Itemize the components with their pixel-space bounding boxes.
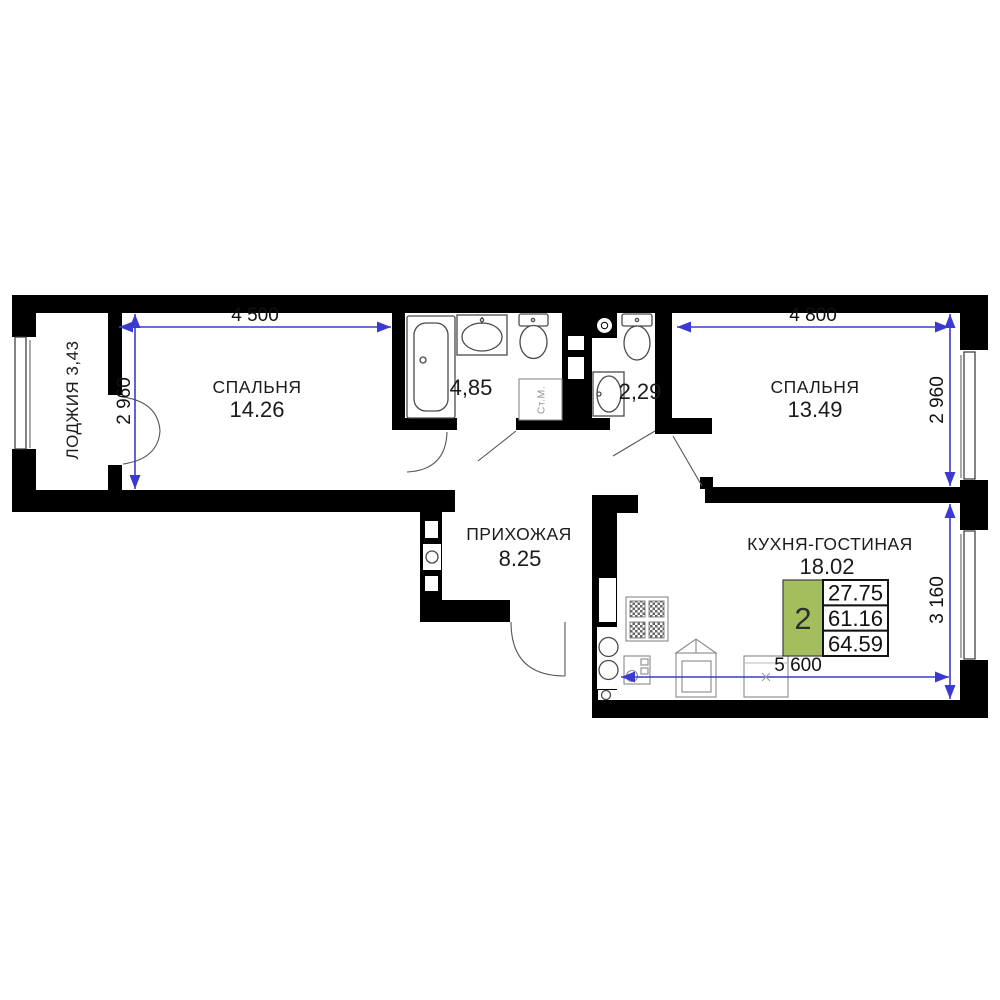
- label-kitchen: КУХНЯ-ГОСТИНАЯ: [747, 534, 913, 554]
- room-hallway: ПРИХОЖАЯ 8.25: [466, 524, 572, 571]
- label-bedroom2: СПАЛЬНЯ: [770, 377, 859, 397]
- bathroom-sink-icon: [457, 315, 507, 355]
- dim-kitchen-width: 5 600: [774, 655, 822, 676]
- badge-room-count: 2: [794, 601, 811, 636]
- area-bedroom1: 14.26: [229, 397, 284, 422]
- dim-bedroom1-depth: 2 960: [114, 377, 135, 425]
- bathroom-toilet-icon: [519, 314, 548, 359]
- label-hallway: ПРИХОЖАЯ: [466, 524, 572, 544]
- floor-plan: Ст.М.: [0, 0, 1000, 1000]
- room-kitchen: КУХНЯ-ГОСТИНАЯ 18.02: [747, 534, 913, 579]
- vent-icon: [592, 313, 617, 338]
- room-labels: ЛОДЖИЯ 3,43 СПАЛЬНЯ 14.26 4,85 2,29 СПАЛ…: [63, 340, 913, 579]
- washing-machine-label: Ст.М.: [536, 386, 548, 414]
- label-bedroom1: СПАЛЬНЯ: [212, 377, 301, 397]
- stove-icon: [626, 597, 668, 641]
- dim-kitchen-depth: 3 160: [927, 576, 948, 624]
- toilet-door-leaf: [613, 431, 655, 456]
- bathtub-icon: [407, 316, 455, 418]
- area-kitchen: 18.02: [799, 554, 854, 579]
- washing-machine: Ст.М.: [519, 379, 562, 420]
- dim-bedroom1-width: 4 500: [231, 305, 279, 326]
- area-hallway: 8.25: [499, 546, 542, 571]
- room-bedroom-2: СПАЛЬНЯ 13.49: [770, 377, 859, 422]
- area-bedroom2: 13.49: [787, 397, 842, 422]
- floor-plan-page: Ст.М.: [0, 0, 1000, 1000]
- label-loggia: ЛОДЖИЯ 3,43: [63, 340, 82, 459]
- loggia-door-leaf-bottom: [123, 431, 160, 464]
- area-bathroom: 4,85: [450, 375, 493, 400]
- bathroom-door-leaf: [478, 431, 516, 461]
- badge-value-2: 61.16: [828, 606, 883, 631]
- fridge-icon: [676, 639, 716, 697]
- entrance-door-arc: [511, 622, 565, 676]
- info-badge: 2 27.75 61.16 64.59: [783, 580, 888, 656]
- dim-bedroom2-depth: 2 960: [927, 376, 948, 424]
- room-bedroom-1: СПАЛЬНЯ 14.26: [212, 377, 301, 422]
- dim-bedroom2-width: 4 800: [789, 305, 837, 326]
- area-toilet: 2,29: [619, 379, 662, 404]
- badge-value-1: 27.75: [828, 581, 883, 606]
- bedroom2-door-leaf: [673, 436, 702, 486]
- bedroom2-window: [961, 352, 975, 479]
- toilet-icon: [622, 314, 652, 360]
- badge-value-3: 64.59: [828, 631, 883, 656]
- bedroom1-door-arc: [407, 432, 447, 472]
- loggia-window: [15, 337, 30, 449]
- kitchen-appliance-icon: [624, 656, 650, 684]
- kitchen-window: [961, 531, 975, 659]
